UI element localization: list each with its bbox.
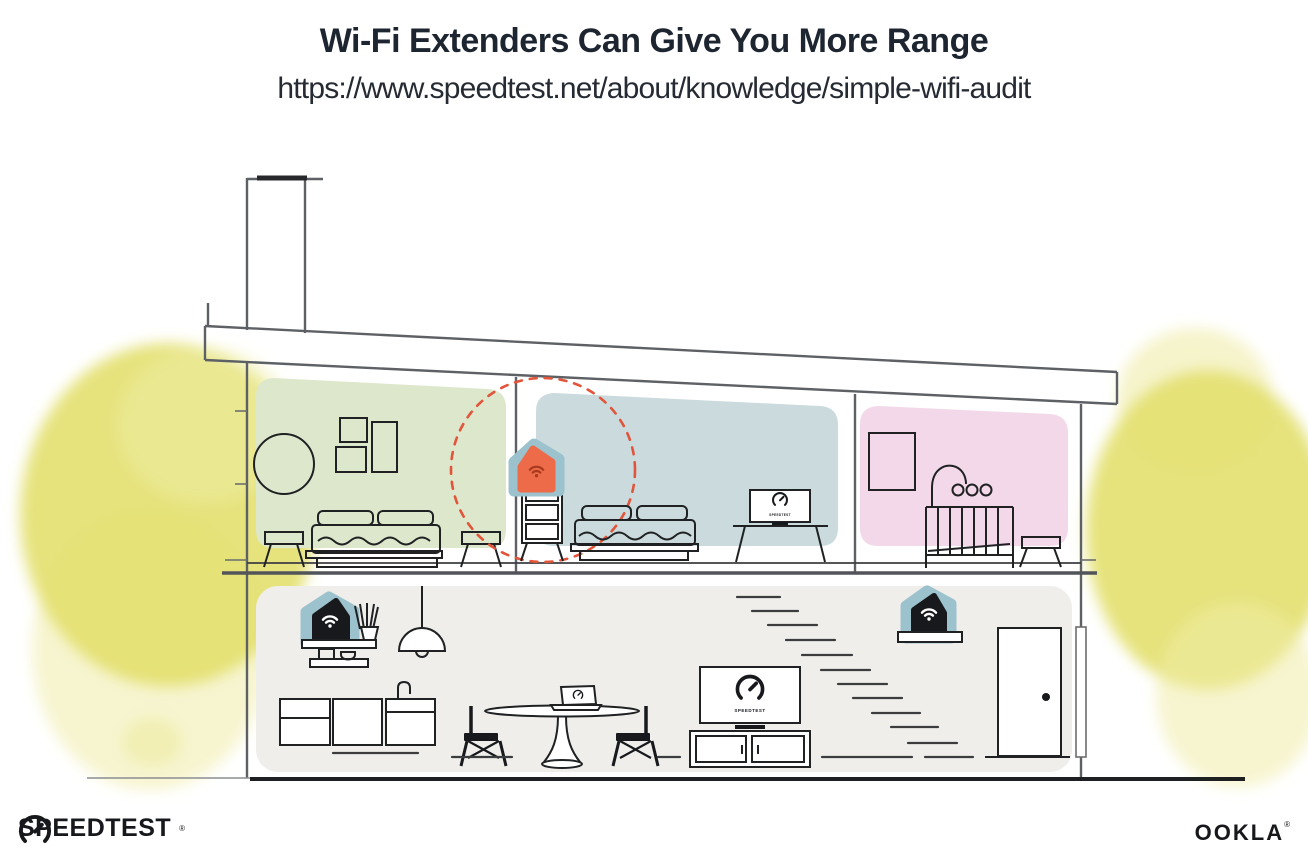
wifi-router-kitchen (306, 597, 354, 643)
speedtest-gauge-icon (18, 814, 52, 848)
registered-mark: ® (179, 824, 185, 834)
tv-screen-label: SPEEDTEST (769, 513, 791, 517)
chimney (247, 178, 323, 333)
drainpipe (1076, 627, 1086, 757)
tv-screen-label: SPEEDTEST (734, 708, 765, 713)
front-door (985, 628, 1070, 757)
living-room-tv: SPEEDTEST (700, 667, 800, 729)
infographic-page: Wi-Fi Extenders Can Give You More Range … (0, 0, 1308, 861)
wall-shelf (898, 632, 962, 642)
house-illustration: SPEEDTEST (0, 0, 1308, 861)
speedtest-logo: SPEEDTEST® (18, 814, 185, 843)
wall-shelf (302, 640, 376, 648)
bedroom-blue-bg (536, 393, 838, 546)
tv-console (690, 731, 810, 767)
door-knob-icon (1042, 693, 1050, 701)
registered-mark: ® (1284, 820, 1290, 829)
tree-right (1086, 328, 1308, 787)
ookla-logo: OOKLA® (1195, 820, 1290, 846)
wifi-extender-bedroom (514, 444, 559, 491)
ookla-wordmark: OOKLA (1195, 820, 1284, 845)
wifi-extender-hall (898, 591, 962, 642)
